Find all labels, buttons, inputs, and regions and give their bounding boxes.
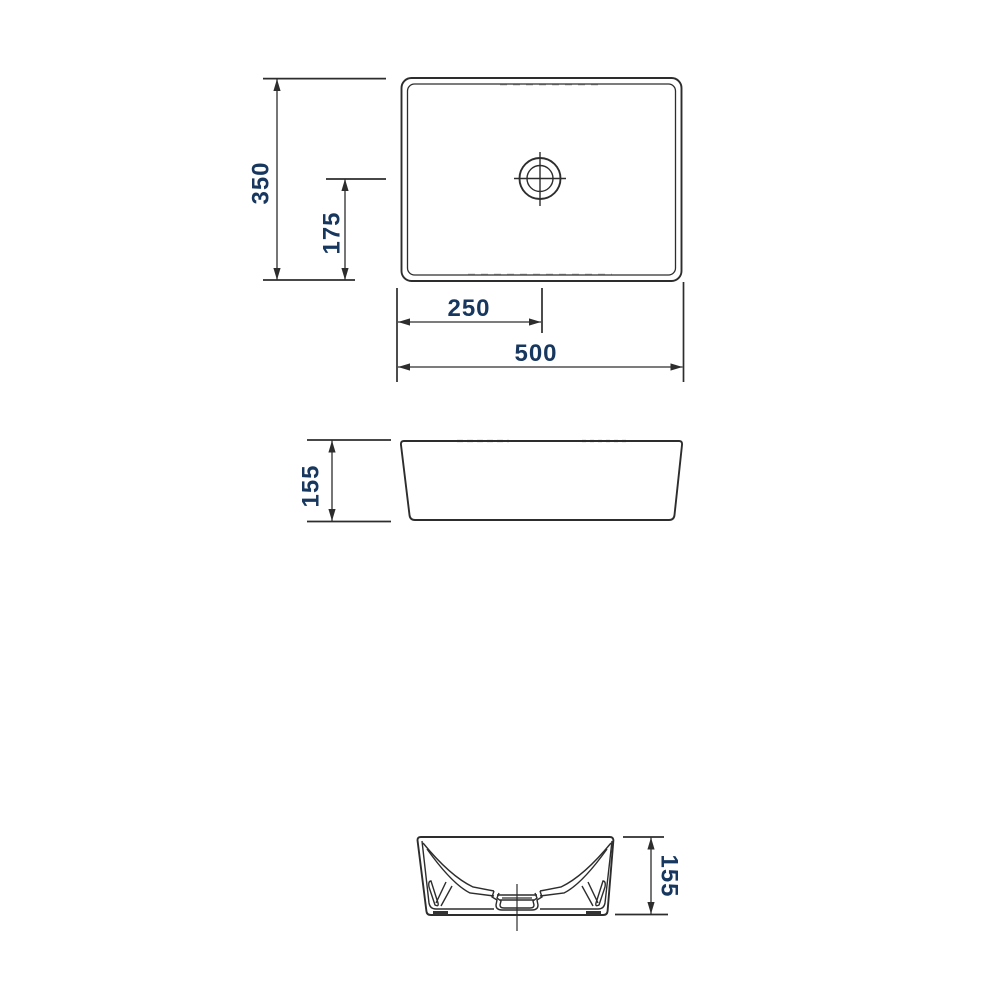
basin-inner-rim <box>408 84 676 275</box>
left-foot-pad <box>433 911 448 915</box>
dimension-label-155-side: 155 <box>656 854 683 897</box>
dimension-label-175: 175 <box>319 211 346 254</box>
front-view <box>401 441 682 520</box>
left-bowl-surface <box>423 843 494 891</box>
side-interior-right <box>540 841 612 915</box>
drawing-page: 350 175 250 500 155 <box>0 0 1000 1000</box>
dimension-label-350: 350 <box>248 161 275 204</box>
top-view-dimensions: 350 175 250 500 <box>248 79 684 382</box>
washbasin-technical-drawing: 350 175 250 500 155 <box>0 0 1000 1000</box>
side-view <box>418 837 614 931</box>
basin-side-outline <box>418 837 614 915</box>
basin-front-outline <box>401 441 682 520</box>
right-bowl-surface <box>540 843 611 891</box>
basin-outer-rim <box>402 78 682 281</box>
drain-cup-section <box>492 884 542 931</box>
dimension-label-155-front: 155 <box>298 464 325 507</box>
front-view-dimensions: 155 <box>298 440 392 522</box>
top-view <box>402 78 682 281</box>
dimension-label-500: 500 <box>514 340 557 367</box>
right-foot-pad <box>586 911 601 915</box>
side-interior-left <box>422 841 494 915</box>
dimension-label-250: 250 <box>447 295 490 322</box>
drain <box>514 152 566 206</box>
side-view-dimensions: 155 <box>615 837 683 915</box>
